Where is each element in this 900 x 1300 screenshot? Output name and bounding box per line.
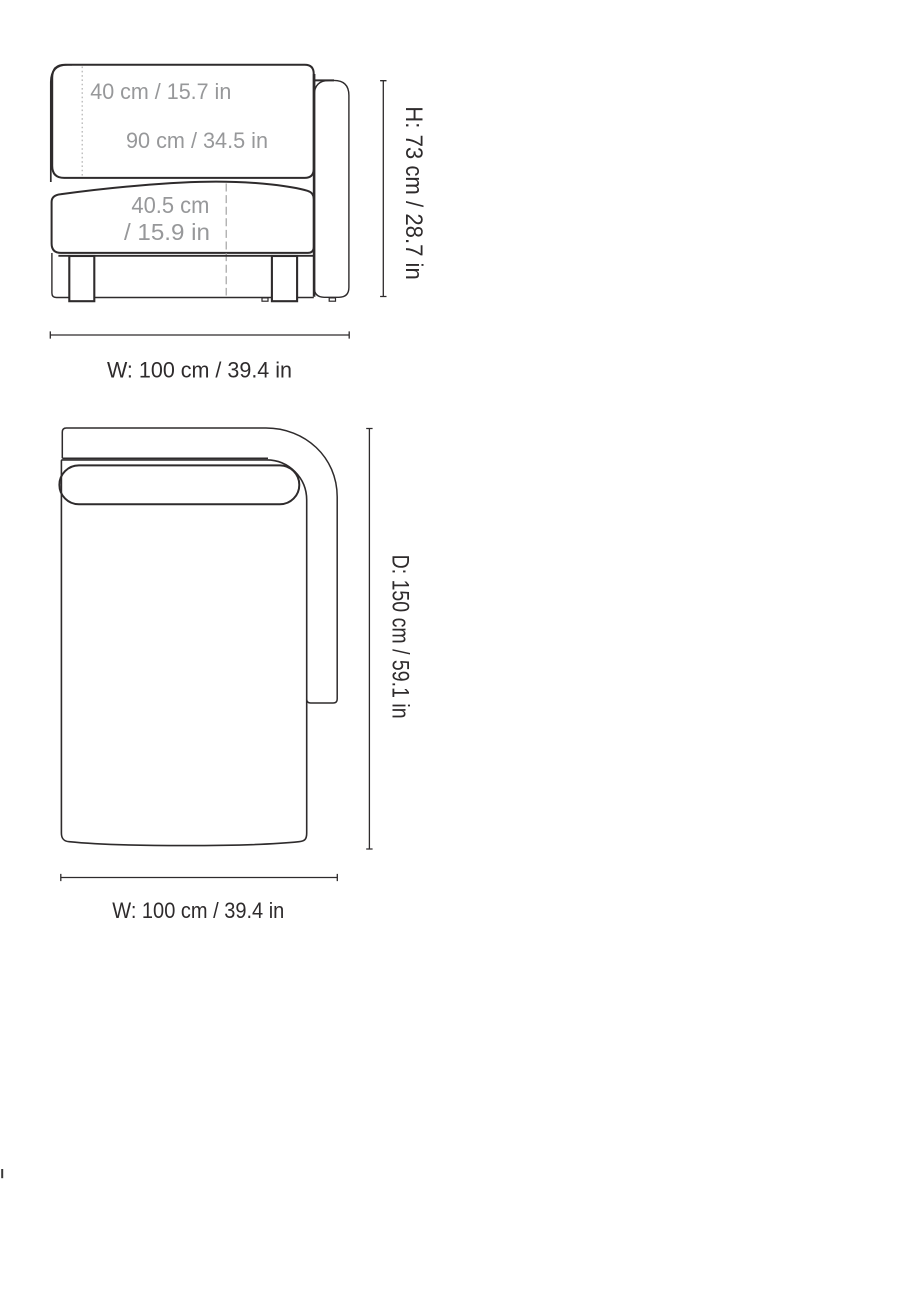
svg-text:90 cm / 34.5 in: 90 cm / 34.5 in [126,128,268,153]
svg-text:D: 150 cm / 59.1 in: D: 150 cm / 59.1 in [386,555,413,719]
svg-text:W: 100 cm / 39.4 in: W: 100 cm / 39.4 in [112,898,284,923]
svg-text:H: 73 cm / 28.7 in: H: 73 cm / 28.7 in [400,106,427,279]
svg-text:/ 15.9 in: / 15.9 in [124,219,210,245]
svg-text:40 cm / 15.7 in: 40 cm / 15.7 in [90,79,231,104]
svg-text:40.5 cm: 40.5 cm [131,192,209,218]
svg-text:W: 100 cm / 39.4 in: W: 100 cm / 39.4 in [107,358,292,383]
